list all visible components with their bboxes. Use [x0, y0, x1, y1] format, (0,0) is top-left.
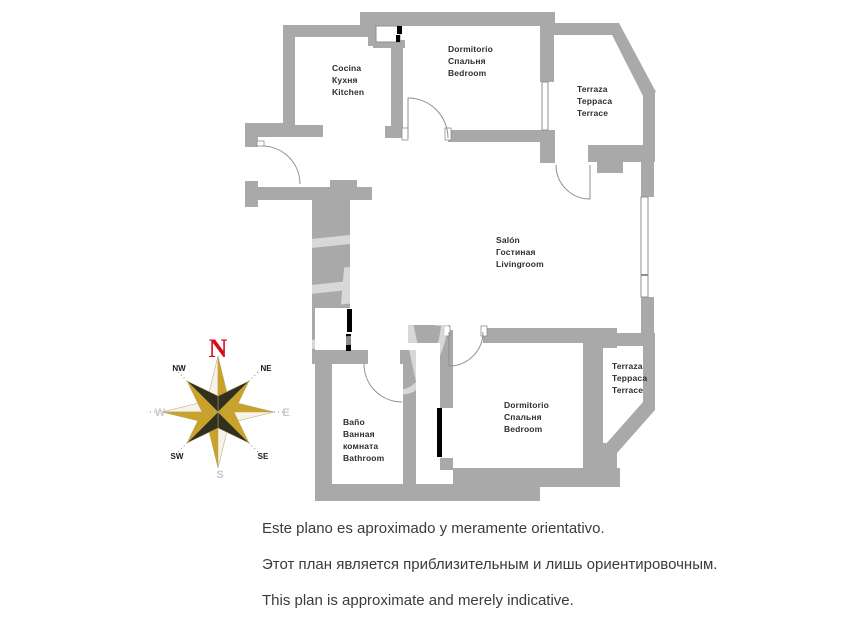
- compass-rose: N NW NE W E SW SE S: [150, 334, 290, 481]
- watermark: E y PR: [258, 204, 450, 396]
- compass-label-se: SE: [258, 452, 269, 461]
- door-arc-terrace-top: [556, 165, 590, 199]
- door-arc-bedroom-top: [408, 98, 448, 138]
- room-label-livingroom: Salón Гостиная Livingroom: [496, 234, 544, 270]
- window-livingroom-east: [641, 197, 648, 297]
- disclaimer-spanish: Este plano es aproximado y meramente ori…: [262, 520, 605, 537]
- floorplan-page: E y PR: [0, 0, 850, 620]
- compass-label-s: S: [216, 469, 223, 481]
- compass-label-n: N: [209, 334, 228, 363]
- compass-label-ne: NE: [260, 364, 272, 373]
- window-bedroom-top: [542, 82, 548, 130]
- compass-label-sw: SW: [171, 452, 184, 461]
- compass-label-e: E: [282, 407, 289, 419]
- room-label-bedroom-top: Dormitorio Спальня Bedroom: [448, 43, 493, 79]
- room-label-kitchen: Cocina Кухня Kitchen: [332, 62, 364, 98]
- disclaimer-english: This plan is approximate and merely indi…: [262, 592, 574, 609]
- shaft-box: [376, 26, 402, 42]
- watermark-script-letter: y: [388, 279, 450, 396]
- compass-label-nw: NW: [172, 364, 186, 373]
- room-label-bathroom: Baño Ванная комната Bathroom: [343, 416, 384, 464]
- watermark-caps-text: PR: [418, 352, 444, 368]
- room-label-bedroom-bottom: Dormitorio Спальня Bedroom: [504, 399, 549, 435]
- room-label-terrace-right: Terraza Терраса Terrace: [612, 360, 647, 396]
- door-arc-entry: [262, 146, 300, 184]
- compass-label-w: W: [155, 407, 166, 419]
- door-arc-bedroom-bottom: [449, 332, 483, 366]
- room-label-terrace-top: Terraza Терраса Terrace: [577, 83, 612, 119]
- disclaimer-russian: Этот план является приблизительным и лиш…: [262, 556, 717, 573]
- watermark-script-letter: E: [258, 204, 388, 389]
